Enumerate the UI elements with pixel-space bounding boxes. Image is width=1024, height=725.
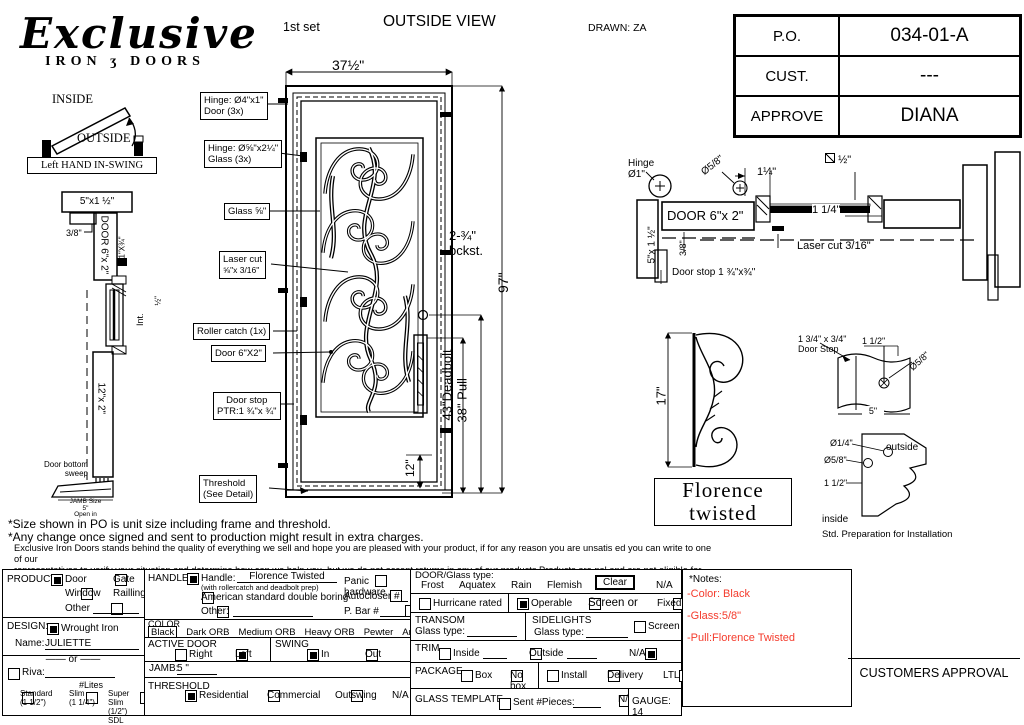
- glass-flemish[interactable]: Flemish: [547, 580, 582, 591]
- package-box-label: Box: [475, 670, 492, 681]
- autocloser-line[interactable]: [392, 592, 408, 602]
- callout-threshold: Threshold(See Detail): [199, 475, 257, 503]
- ds-label: 1 3/4" x 3/4"Door Stop: [798, 334, 846, 354]
- operable-label: Operable: [531, 598, 572, 609]
- residential-label: Residential: [199, 690, 248, 701]
- notes-title: *Notes:: [689, 574, 722, 585]
- product-gate-label: Gate: [113, 574, 135, 585]
- handle-title: HANDLE: [148, 573, 189, 584]
- ds-dim112: 1 1/2": [862, 336, 885, 346]
- callout-roller-catch: Roller catch (1x): [193, 323, 270, 340]
- riva-line[interactable]: [45, 668, 115, 678]
- glass-template-section: GLASS TEMPLATE Sent #Pieces:: [410, 688, 630, 716]
- ds-dim5: 5": [862, 406, 884, 416]
- callout-glass: Glass ⅝": [224, 203, 270, 220]
- swing-title: SWING: [275, 639, 309, 650]
- notes-section: *Notes: -Color: Black -Glass:5/8" -Pull:…: [682, 569, 852, 707]
- trim-na-label: N/A: [629, 648, 646, 659]
- sent-pieces-line[interactable]: [573, 698, 601, 708]
- prep-dia58: Ø5/8": [824, 455, 847, 465]
- product-other-label: Other: [65, 603, 90, 614]
- jamb-value[interactable]: 5 ": [177, 663, 217, 675]
- trim-inside-checkbox[interactable]: [439, 648, 451, 660]
- design-wrought-label: Wrought Iron: [61, 623, 119, 634]
- handle-checkbox[interactable]: [187, 573, 199, 585]
- delivery-label: Delivery: [607, 670, 643, 681]
- riva-label: Riva:: [22, 667, 45, 678]
- prep-inside: inside: [822, 514, 848, 525]
- product-other-line[interactable]: [93, 604, 139, 614]
- gauge-value: GAUGE: 14: [632, 696, 681, 718]
- threshold-na-label: N/A: [392, 690, 409, 701]
- active-right-checkbox[interactable]: [175, 649, 187, 661]
- pbar-label: P. Bar #: [344, 606, 379, 617]
- handle-sub: (with rollercatch and deadbolt prep): [201, 583, 319, 592]
- super-slim-label: Super Slim(1/2") SDL: [108, 689, 145, 725]
- handle-other-label: Other:: [201, 606, 229, 617]
- jamb-title: JAMB:: [149, 663, 178, 674]
- glass-frost[interactable]: Frost: [421, 580, 444, 591]
- trim-inside-label: Inside: [453, 648, 480, 659]
- sidelights-glass-line[interactable]: [586, 628, 628, 638]
- glass-rain[interactable]: Rain: [511, 580, 532, 591]
- hurricane-section: Hurricane rated: [410, 593, 510, 614]
- transom-glass-label: Glass type:: [415, 626, 465, 637]
- riva-lites-section: —— or —— Riva: #Lites Standard(1 1/2") S…: [2, 655, 146, 716]
- color-section: COLOR Black Dark ORB Medium ORB Heavy OR…: [144, 619, 412, 639]
- product-railling-label: Railling: [113, 588, 146, 599]
- handle-value[interactable]: Florence Twisted: [237, 571, 337, 583]
- disclaimer-line1: *Size shown in PO is unit size including…: [8, 517, 331, 531]
- hurricane-label: Hurricane rated: [433, 598, 502, 609]
- residential-checkbox[interactable]: [185, 690, 197, 702]
- callout-door-stop: Door stopPTR:1 ¾"x ¾": [213, 392, 281, 420]
- product-window-label: Window: [65, 588, 101, 599]
- transom-section: TRANSOM Glass type:: [410, 612, 527, 642]
- callout-door-size: Door 6"X2": [211, 345, 266, 362]
- trim-inside-line[interactable]: [483, 649, 507, 659]
- product-section: PRODUCT: Door Gate Window Railling Other: [2, 569, 146, 619]
- sent-pieces-checkbox[interactable]: [499, 698, 511, 710]
- prep-dim112: 1 1/2": [824, 478, 847, 488]
- transom-title: TRANSOM: [415, 615, 465, 626]
- slim-label: Slim(1 1/4"): [69, 689, 95, 707]
- prep-outside: outside: [886, 442, 918, 453]
- design-name-value[interactable]: JULIETTE: [45, 638, 139, 650]
- customers-approval-label: CUSTOMERS APPROVAL: [848, 666, 1020, 680]
- product-door-label: Door: [65, 574, 87, 585]
- delivery-section: Install Delivery LTL: [538, 662, 682, 690]
- sidelights-section: SIDELIGHTS Glass type: Screen: [525, 612, 682, 642]
- sidelights-title: SIDELIGHTS: [532, 615, 591, 626]
- note-pull: -Pull:Florence Twisted: [687, 632, 795, 644]
- sidelights-screen-label: Screen: [648, 621, 680, 632]
- outswing-label: Outswing: [335, 690, 377, 701]
- hurricane-checkbox[interactable]: [419, 598, 431, 610]
- product-door-checkbox[interactable]: [51, 574, 63, 586]
- active-door-section: ACTIVE DOOR Right Left: [144, 637, 272, 663]
- callout-hinge-door: Hinge: Ø4"x1"Door (3x): [200, 92, 268, 120]
- callout-hinge-glass: Hinge: Ø⅝"x2¼"Glass (3x): [204, 140, 282, 168]
- install-label: Install: [561, 670, 587, 681]
- glass-clear-selected[interactable]: Clear: [595, 575, 635, 590]
- active-right-label: Right: [189, 649, 212, 660]
- sidelights-screen-checkbox[interactable]: [634, 621, 646, 633]
- glass-aquatex[interactable]: Aquatex: [459, 580, 496, 591]
- note-glass: -Glass:5/8": [687, 610, 741, 622]
- trim-section: TRIM Inside Outside N/A: [410, 640, 682, 664]
- design-wrought-checkbox[interactable]: [47, 623, 59, 635]
- swing-in-label: In: [321, 649, 329, 660]
- american-boring-label: American standard double boring: [201, 592, 348, 603]
- active-left-label: Left: [235, 649, 252, 660]
- package-box-checkbox[interactable]: [461, 670, 473, 682]
- transom-glass-line[interactable]: [467, 627, 517, 637]
- fixed-label: Fixed: [657, 598, 681, 609]
- swing-section: SWING In Out: [270, 637, 412, 663]
- screen-or-label: Screen or: [588, 597, 638, 609]
- trim-na-checkbox[interactable]: [645, 648, 657, 660]
- standard-label: Standard(1 1/2"): [20, 689, 52, 707]
- threshold-section: THRESHOLD Residential Commercial Outswin…: [144, 677, 412, 716]
- prep-caption: Std. Preparation for Installation: [822, 529, 952, 540]
- riva-checkbox[interactable]: [8, 668, 20, 680]
- gauge-section: GAUGE: 14: [628, 688, 682, 716]
- handle-other-line[interactable]: [233, 607, 313, 617]
- swing-in-checkbox[interactable]: [307, 649, 319, 661]
- note-color: -Color: Black: [687, 588, 750, 600]
- ltl-label: LTL: [663, 670, 680, 681]
- prep-dia14: Ø1/4": [830, 438, 853, 448]
- operable-checkbox[interactable]: [517, 598, 529, 610]
- design-title: DESIGN:: [7, 621, 48, 632]
- glass-na[interactable]: N/A: [656, 580, 673, 591]
- swing-out-label: Out: [365, 649, 381, 660]
- disclaimer-line2: *Any change once signed and sent to prod…: [8, 530, 424, 544]
- pbar-line[interactable]: [380, 607, 406, 617]
- package-title: PACKAGE: [415, 666, 463, 677]
- sent-pieces-label: Sent #Pieces:: [513, 697, 575, 708]
- handle-section: HANDLE Handle: Florence Twisted (with ro…: [144, 569, 412, 621]
- glass-type-section: DOOR/Glass type: Frost Aquatex Rain Flem…: [410, 569, 682, 595]
- package-section: PACKAGE Box No box: [410, 662, 540, 690]
- sidelights-glass-label: Glass type:: [534, 627, 584, 638]
- design-name-label: Name:: [15, 638, 44, 649]
- operable-fixed-section: Operable Screen or Fixed: [508, 593, 682, 614]
- trim-outside-label: Outside: [529, 648, 563, 659]
- design-section: DESIGN: Wrought Iron Name: JULIETTE: [2, 617, 146, 657]
- commercial-label: Commercial: [267, 690, 320, 701]
- trim-outside-line[interactable]: [567, 649, 597, 659]
- glass-template-title: GLASS TEMPLATE: [415, 694, 503, 705]
- trim-title: TRIM: [415, 643, 439, 654]
- or-divider: —— or ——: [3, 654, 143, 665]
- install-checkbox[interactable]: [547, 670, 559, 682]
- callout-laser-cut: Laser cut⅝"x 3/16": [219, 251, 266, 279]
